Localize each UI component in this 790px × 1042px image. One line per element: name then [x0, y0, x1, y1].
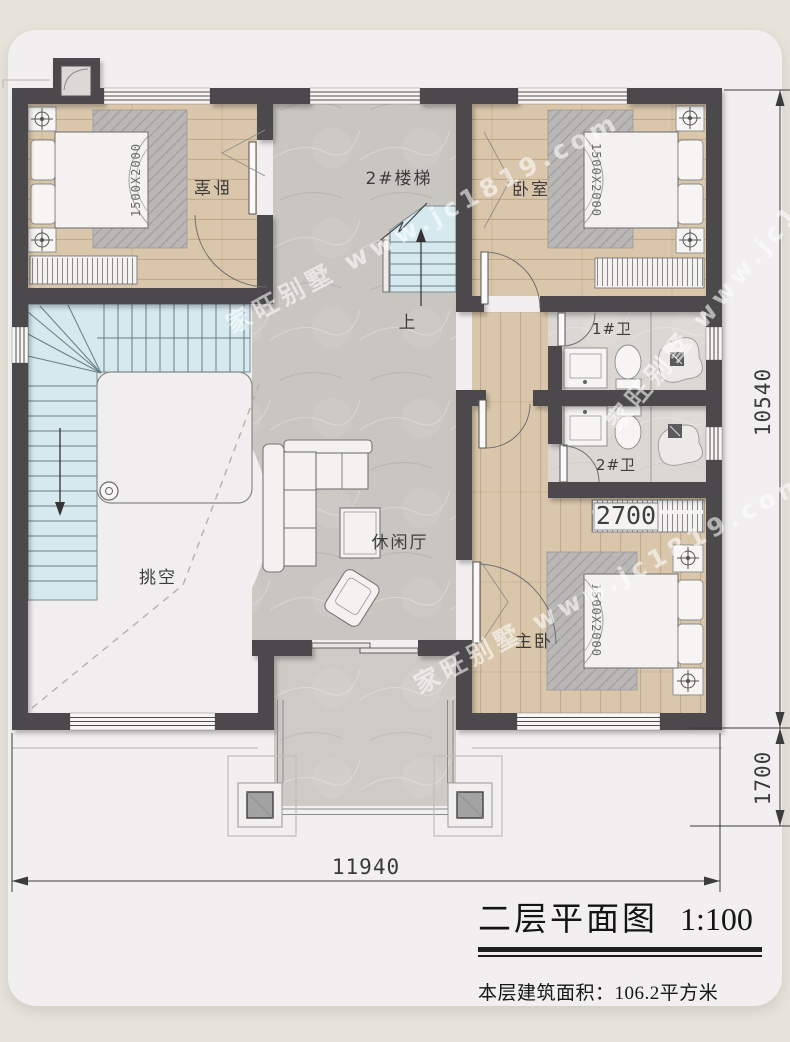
room-label-stair2: 2#楼梯	[365, 169, 432, 189]
title-underline-thin	[478, 955, 762, 957]
stairwell-landing	[97, 372, 252, 503]
window	[517, 713, 660, 730]
floor-area-text: 本层建筑面积：106.2平方米	[478, 978, 762, 1005]
pillow	[678, 140, 703, 180]
room-label-bedroom-left: 卧室	[192, 176, 230, 196]
newel-post	[100, 482, 118, 500]
dim-porch-depth: 1700	[751, 751, 775, 806]
dim-overall-width: 11940	[332, 855, 400, 879]
bed-size-label: 1500X2000	[129, 143, 143, 217]
window	[518, 88, 627, 104]
floor-plan-drawing: 1500X2000 1500X2000 2700	[0, 0, 790, 1042]
pillow	[678, 624, 703, 664]
window	[104, 88, 210, 104]
window	[706, 427, 722, 460]
column	[448, 783, 492, 827]
pillow	[31, 140, 55, 180]
window	[12, 327, 28, 363]
pillow	[678, 580, 703, 620]
pillow	[31, 184, 55, 224]
room-label-bath1: 1#卫	[592, 320, 632, 338]
chimney-flue	[61, 66, 91, 96]
room-label-lounge: 休闲厅	[372, 533, 429, 553]
eave-line	[3, 80, 50, 88]
dim-overall-height: 10540	[751, 368, 775, 436]
room-label-void: 挑空	[139, 568, 177, 588]
plan-scale: 1:100	[680, 901, 753, 938]
sofa-back	[284, 440, 372, 453]
floor-plan-page: 1500X2000 1500X2000 2700	[0, 0, 790, 1042]
plan-title: 二层平面图	[478, 892, 658, 940]
stair-up-label: 上	[399, 313, 418, 333]
column	[238, 783, 282, 827]
title-block: 二层平面图 1:100 本层建筑面积：106.2平方米	[478, 892, 762, 1005]
window	[70, 713, 215, 730]
wardrobe	[30, 256, 137, 284]
wardrobe	[595, 258, 704, 288]
window	[310, 88, 420, 104]
sofa-seats	[284, 452, 316, 566]
pillow	[678, 184, 703, 224]
room-label-bath2: 2#卫	[596, 456, 636, 474]
wardrobe-dim-label: 2700	[596, 501, 656, 530]
sofa-back	[263, 444, 284, 572]
bed-size-label: 1500X2000	[589, 143, 603, 217]
title-underline-thick	[478, 947, 762, 952]
